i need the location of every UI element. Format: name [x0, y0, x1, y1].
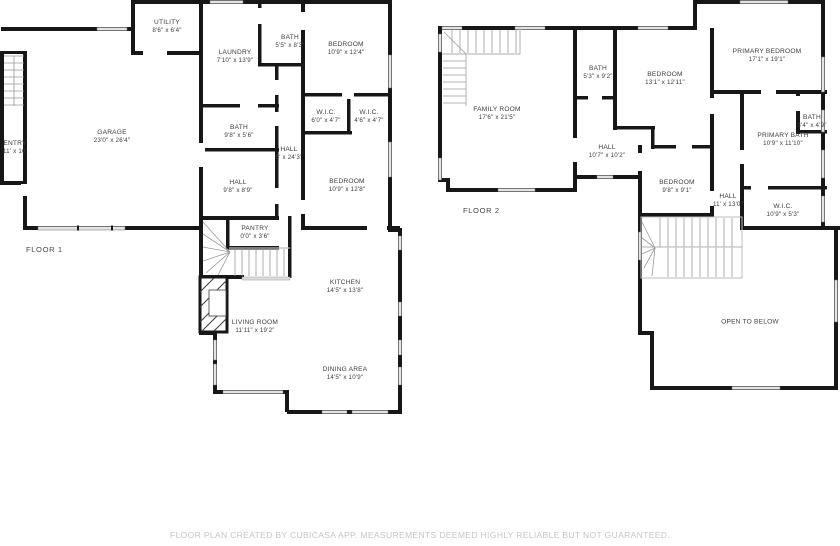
room-name: HALL	[713, 192, 743, 201]
room-label: HALL 11' x 13'0"	[713, 192, 743, 210]
room-dimensions: 23'0" x 26'4"	[94, 137, 131, 146]
room-name: PRIMARY BEDROOM	[733, 47, 802, 56]
room-label: DINING AREA 14'5" x 10'9"	[323, 365, 368, 383]
room-name: KITCHEN	[327, 278, 364, 287]
room-label: LAUNDRY 7'10" x 13'9"	[217, 48, 254, 66]
room-dimensions: 0'0" x 3'6"	[240, 233, 269, 242]
floor2-label: FLOOR 2	[463, 206, 500, 215]
room-name: GARAGE	[94, 128, 131, 137]
room-dimensions: 9'8" x 5'6"	[224, 132, 253, 141]
room-label: BATH 9'8" x 5'6"	[224, 123, 253, 141]
room-dimensions: 10'7" x 10'2"	[589, 152, 626, 161]
room-dimensions: 9'8" x 8'9"	[223, 187, 252, 196]
room-name: PANTRY	[240, 224, 269, 233]
room-label: W.I.C. 6'0" x 4'7"	[311, 108, 340, 126]
room-name: BATH	[224, 123, 253, 132]
room-name: OPEN TO BELOW	[721, 317, 779, 326]
room-dimensions: 10'9" x 12'8"	[329, 186, 366, 195]
room-dimensions: 5'5" x 8'3"	[275, 42, 304, 51]
room-name: HALL	[223, 178, 252, 187]
room-name: BEDROOM	[645, 70, 685, 79]
room-dimensions: 11'11" x 19'2"	[232, 327, 278, 336]
room-label: PRIMARY BEDROOM 17'1" x 19'1"	[733, 47, 802, 65]
room-dimensions: 14'5" x 10'9"	[323, 374, 368, 383]
room-name: LIVING ROOM	[232, 318, 278, 327]
room-name: PRIMARY BATH	[757, 131, 808, 140]
room-name: UTILITY	[152, 18, 181, 27]
room-dimensions: 10'9" x 5'3"	[767, 211, 800, 220]
room-label: GARAGE 23'0" x 26'4"	[94, 128, 131, 146]
room-label: PANTRY 0'0" x 3'6"	[240, 224, 269, 242]
caption: FLOOR PLAN CREATED BY CUBICASA APP. MEAS…	[0, 530, 840, 540]
room-name: W.I.C.	[767, 202, 800, 211]
room-name: BATH	[583, 64, 612, 73]
room-label: HALL 9'8" x 8'9"	[223, 178, 252, 196]
room-label: PRIMARY BATH 10'9" x 11'10"	[757, 131, 808, 149]
room-label: W.I.C. 4'6" x 4'7"	[354, 108, 383, 126]
room-label: FAMILY ROOM 17'6" x 21'5"	[473, 105, 520, 123]
room-label: BEDROOM 10'9" x 12'4"	[328, 40, 365, 58]
room-label: LIVING ROOM 11'11" x 19'2"	[232, 318, 278, 336]
room-name: BATH	[275, 33, 304, 42]
room-name: W.I.C.	[354, 108, 383, 117]
room-dimensions: 5'3" x 9'2"	[583, 73, 612, 82]
room-label: HALL 5' x 24'3"	[276, 145, 303, 163]
labels-layer: FLOOR 1 FLOOR 2 FLOOR PLAN CREATED BY CU…	[0, 0, 840, 546]
room-name: BEDROOM	[329, 177, 366, 186]
room-label: ENTRY 11' x 10'	[3, 139, 27, 157]
room-dimensions: 14'5" x 13'8"	[327, 287, 364, 296]
room-dimensions: 10'9" x 11'10"	[757, 140, 808, 149]
room-dimensions: 8'6" x 6'4"	[152, 27, 181, 36]
floor1-label: FLOOR 1	[26, 245, 63, 254]
room-name: BEDROOM	[328, 40, 365, 49]
room-label: BATH 5'5" x 8'3"	[275, 33, 304, 51]
room-name: W.I.C.	[311, 108, 340, 117]
room-name: BATH	[797, 113, 826, 122]
room-name: LAUNDRY	[217, 48, 254, 57]
room-name: ENTRY	[3, 139, 27, 148]
room-dimensions: 7'10" x 13'9"	[217, 57, 254, 66]
room-dimensions: 17'1" x 19'1"	[733, 56, 802, 65]
room-dimensions: 11' x 10'	[3, 148, 27, 157]
room-dimensions: 13'1" x 12'11"	[645, 79, 685, 88]
room-dimensions: 4'6" x 4'7"	[354, 117, 383, 126]
room-dimensions: 3'4" x 4'9"	[797, 122, 826, 131]
room-label: W.I.C. 10'9" x 5'3"	[767, 202, 800, 220]
room-name: HALL	[276, 145, 303, 154]
room-label: BEDROOM 9'8" x 9'1"	[659, 178, 694, 196]
room-label: UTILITY 8'6" x 6'4"	[152, 18, 181, 36]
room-dimensions: 10'9" x 12'4"	[328, 49, 365, 58]
room-dimensions: 5' x 24'3"	[276, 154, 303, 163]
room-label: BEDROOM 13'1" x 12'11"	[645, 70, 685, 88]
room-label: BEDROOM 10'9" x 12'8"	[329, 177, 366, 195]
room-name: DINING AREA	[323, 365, 368, 374]
floor-plan-canvas: FLOOR 1 FLOOR 2 FLOOR PLAN CREATED BY CU…	[0, 0, 840, 546]
room-dimensions: 9'8" x 9'1"	[659, 187, 694, 196]
room-name: FAMILY ROOM	[473, 105, 520, 114]
room-dimensions: 6'0" x 4'7"	[311, 117, 340, 126]
room-dimensions: 17'6" x 21'5"	[473, 114, 520, 123]
room-name: HALL	[589, 143, 626, 152]
room-name: BEDROOM	[659, 178, 694, 187]
room-label: BATH 3'4" x 4'9"	[797, 113, 826, 131]
room-label: KITCHEN 14'5" x 13'8"	[327, 278, 364, 296]
room-label: OPEN TO BELOW	[721, 317, 779, 326]
room-dimensions: 11' x 13'0"	[713, 201, 743, 210]
room-label: BATH 5'3" x 9'2"	[583, 64, 612, 82]
room-label: HALL 10'7" x 10'2"	[589, 143, 626, 161]
